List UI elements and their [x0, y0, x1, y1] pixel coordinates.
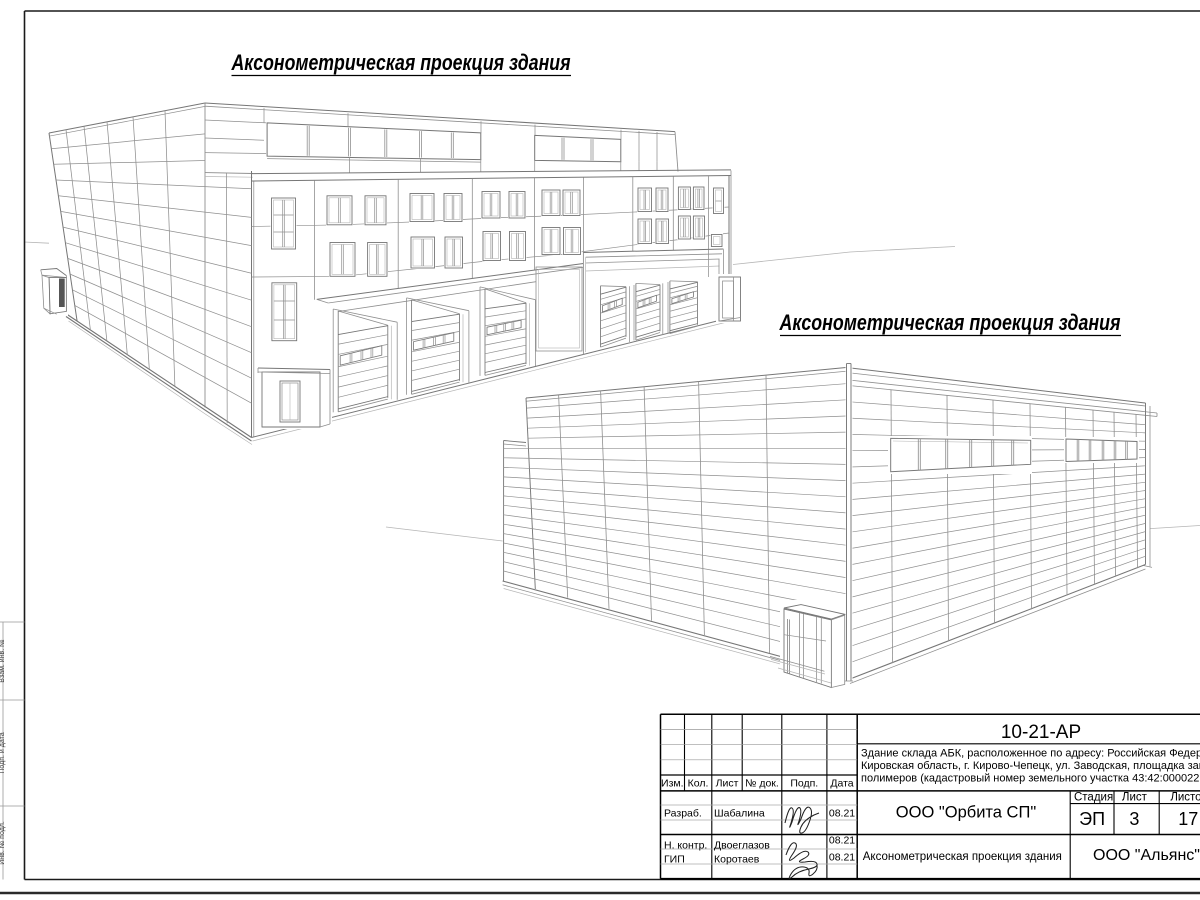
svg-text:Подп.: Подп. [790, 777, 818, 789]
svg-text:Кировская область, г. Кирово-Ч: Кировская область, г. Кирово-Чепецк, ул.… [861, 760, 1200, 772]
svg-text:Подп. и дата: Подп. и дата [0, 732, 6, 773]
svg-text:Коротаев: Коротаев [714, 854, 760, 866]
svg-text:ЭП: ЭП [1079, 809, 1105, 829]
svg-text:Взам. инв. №: Взам. инв. № [0, 639, 6, 682]
svg-text:Стадия: Стадия [1074, 792, 1113, 804]
svg-text:Кол.: Кол. [688, 777, 709, 789]
svg-text:Листов: Листов [1170, 792, 1200, 804]
svg-text:Лист: Лист [1122, 792, 1148, 804]
svg-text:08.21: 08.21 [829, 834, 855, 846]
svg-text:полимеров (кадастровый номер з: полимеров (кадастровый номер земельного … [861, 773, 1200, 785]
svg-text:Инв. № подл.: Инв. № подл. [0, 821, 6, 865]
svg-text:ООО "Орбита СП": ООО "Орбита СП" [896, 804, 1037, 822]
svg-text:Здание склада АБК, расположенн: Здание склада АБК, расположенное по адре… [861, 748, 1200, 760]
svg-text:Аксонометрическая проекция зда: Аксонометрическая проекция здания [779, 310, 1121, 335]
svg-text:ООО "Альянс": ООО "Альянс" [1093, 847, 1200, 864]
svg-text:Аксонометрическая проекция зда: Аксонометрическая проекция здания [863, 851, 1062, 863]
svg-text:10-21-АР: 10-21-АР [1001, 722, 1081, 743]
svg-text:08.21: 08.21 [829, 852, 855, 864]
svg-text:Изм.: Изм. [661, 777, 684, 789]
svg-text:08.21: 08.21 [829, 807, 855, 819]
svg-text:№ док.: № док. [745, 777, 779, 789]
svg-text:Аксонометрическая проекция зда: Аксонометрическая проекция здания [231, 50, 571, 75]
svg-text:17: 17 [1178, 809, 1198, 829]
svg-text:3: 3 [1129, 809, 1139, 829]
svg-text:Дата: Дата [830, 777, 853, 789]
svg-text:Двоеглазов: Двоеглазов [714, 840, 770, 852]
svg-text:Н. контр.: Н. контр. [664, 840, 707, 852]
svg-text:ГИП: ГИП [664, 854, 685, 866]
svg-text:Разраб.: Разраб. [664, 807, 702, 819]
svg-text:Шабалина: Шабалина [714, 807, 765, 819]
svg-text:Лист: Лист [716, 777, 739, 789]
